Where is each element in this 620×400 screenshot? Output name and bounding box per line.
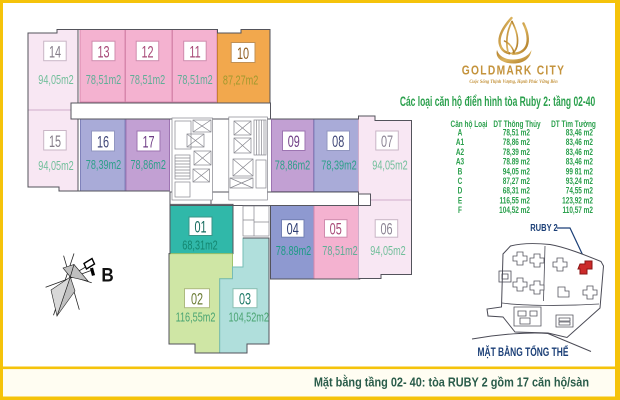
svg-text:94,05m2: 94,05m2 <box>370 245 405 259</box>
svg-text:04: 04 <box>287 219 299 238</box>
svg-text:03: 03 <box>239 289 251 308</box>
svg-text:12: 12 <box>141 42 153 61</box>
svg-text:14: 14 <box>49 42 61 61</box>
svg-text:16: 16 <box>97 132 109 151</box>
svg-text:08: 08 <box>332 132 344 151</box>
svg-text:110,57 m2: 110,57 m2 <box>563 205 594 216</box>
svg-text:78,39m2: 78,39m2 <box>321 159 356 173</box>
svg-text:RUBY 2: RUBY 2 <box>530 222 558 233</box>
svg-text:02: 02 <box>191 289 203 308</box>
svg-text:01: 01 <box>194 217 206 236</box>
svg-text:06: 06 <box>380 219 392 238</box>
svg-text:B: B <box>101 265 113 286</box>
svg-text:15: 15 <box>49 132 61 151</box>
svg-text:78,51m2: 78,51m2 <box>177 74 212 88</box>
svg-text:MẶT BẰNG TỔNG THỂ: MẶT BẰNG TỔNG THỂ <box>478 344 569 359</box>
svg-text:78,86m2: 78,86m2 <box>275 159 310 173</box>
svg-text:78,51m2: 78,51m2 <box>86 74 121 88</box>
svg-text:78.89m2: 78.89m2 <box>276 245 311 259</box>
svg-text:68,31m2: 68,31m2 <box>182 239 217 253</box>
svg-text:Cuộc Sống Thịnh Vượng, Hạnh Ph: Cuộc Sống Thịnh Vượng, Hạnh Phúc Vững Bề… <box>469 80 557 86</box>
svg-text:87,27m2: 87,27m2 <box>223 74 258 88</box>
svg-text:Các loại căn hộ điển hình tòa: Các loại căn hộ điển hình tòa Ruby 2: tầ… <box>400 95 595 109</box>
svg-text:F: F <box>458 205 462 216</box>
svg-text:104,52m2: 104,52m2 <box>228 311 268 325</box>
svg-text:78,86m2: 78,86m2 <box>130 159 165 173</box>
svg-text:Mặt bằng tầng 02- 40: tòa RUB: Mặt bằng tầng 02- 40: tòa RUBY 2 gồm 17 … <box>314 374 589 390</box>
svg-text:94,05m2: 94,05m2 <box>38 160 73 174</box>
svg-text:94,05m2: 94,05m2 <box>372 159 407 173</box>
svg-text:GOLDMARK CITY: GOLDMARK CITY <box>462 65 566 78</box>
svg-text:78,51m2: 78,51m2 <box>130 74 165 88</box>
svg-text:07: 07 <box>381 132 393 151</box>
svg-text:104,52 m2: 104,52 m2 <box>499 205 530 216</box>
svg-text:17: 17 <box>142 132 154 151</box>
svg-text:11: 11 <box>189 42 200 61</box>
svg-text:94,05m2: 94,05m2 <box>38 74 73 88</box>
svg-text:116,55m2: 116,55m2 <box>176 311 216 325</box>
svg-text:Căn hộ Loại: Căn hộ Loại <box>451 119 488 130</box>
svg-text:09: 09 <box>288 132 300 151</box>
svg-text:13: 13 <box>97 42 109 61</box>
svg-text:78,51m2: 78,51m2 <box>322 245 357 259</box>
svg-text:10: 10 <box>237 44 249 63</box>
svg-text:78,39m2: 78,39m2 <box>86 159 121 173</box>
svg-text:05: 05 <box>330 219 342 238</box>
